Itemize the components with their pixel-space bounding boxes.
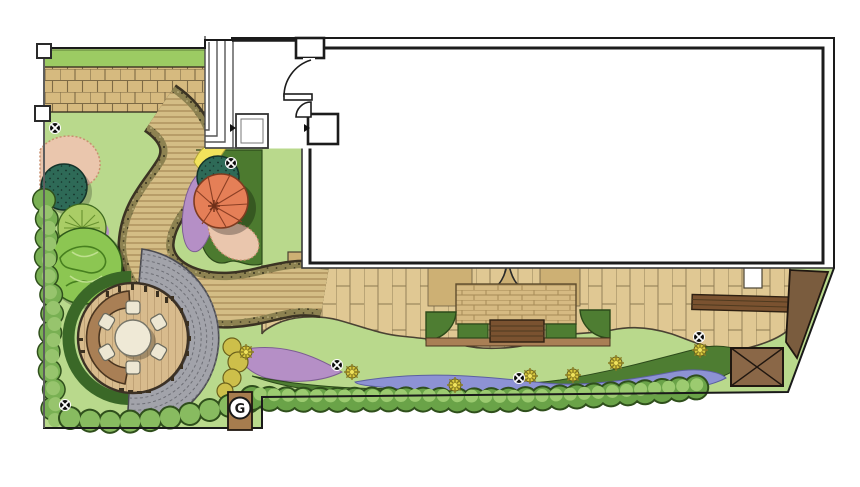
wall-pier <box>308 114 338 144</box>
paver-band <box>44 67 230 112</box>
garden-plan: G <box>0 0 860 487</box>
flower-cluster <box>692 342 708 358</box>
garden-light <box>694 332 705 343</box>
paving-recess <box>744 266 762 288</box>
fence-post <box>35 106 50 121</box>
top-green-strip <box>44 50 230 67</box>
garden-light <box>60 400 71 411</box>
garden-light <box>226 158 237 169</box>
wall-pier <box>296 38 324 58</box>
utility-post: G <box>228 392 252 430</box>
planter <box>546 324 576 338</box>
utility-label: G <box>235 402 246 417</box>
shed <box>731 348 783 386</box>
garden-light <box>332 360 343 371</box>
garden-light <box>50 123 61 134</box>
bench <box>490 320 544 342</box>
planter <box>458 324 488 338</box>
raised-bed <box>786 270 828 358</box>
flower-cluster <box>565 367 581 383</box>
brick-panel <box>456 284 576 324</box>
fence-post <box>37 44 51 58</box>
flower-cluster <box>608 355 624 371</box>
garden-light <box>514 373 525 384</box>
building-footprint <box>310 48 823 263</box>
dining-table <box>115 320 151 356</box>
